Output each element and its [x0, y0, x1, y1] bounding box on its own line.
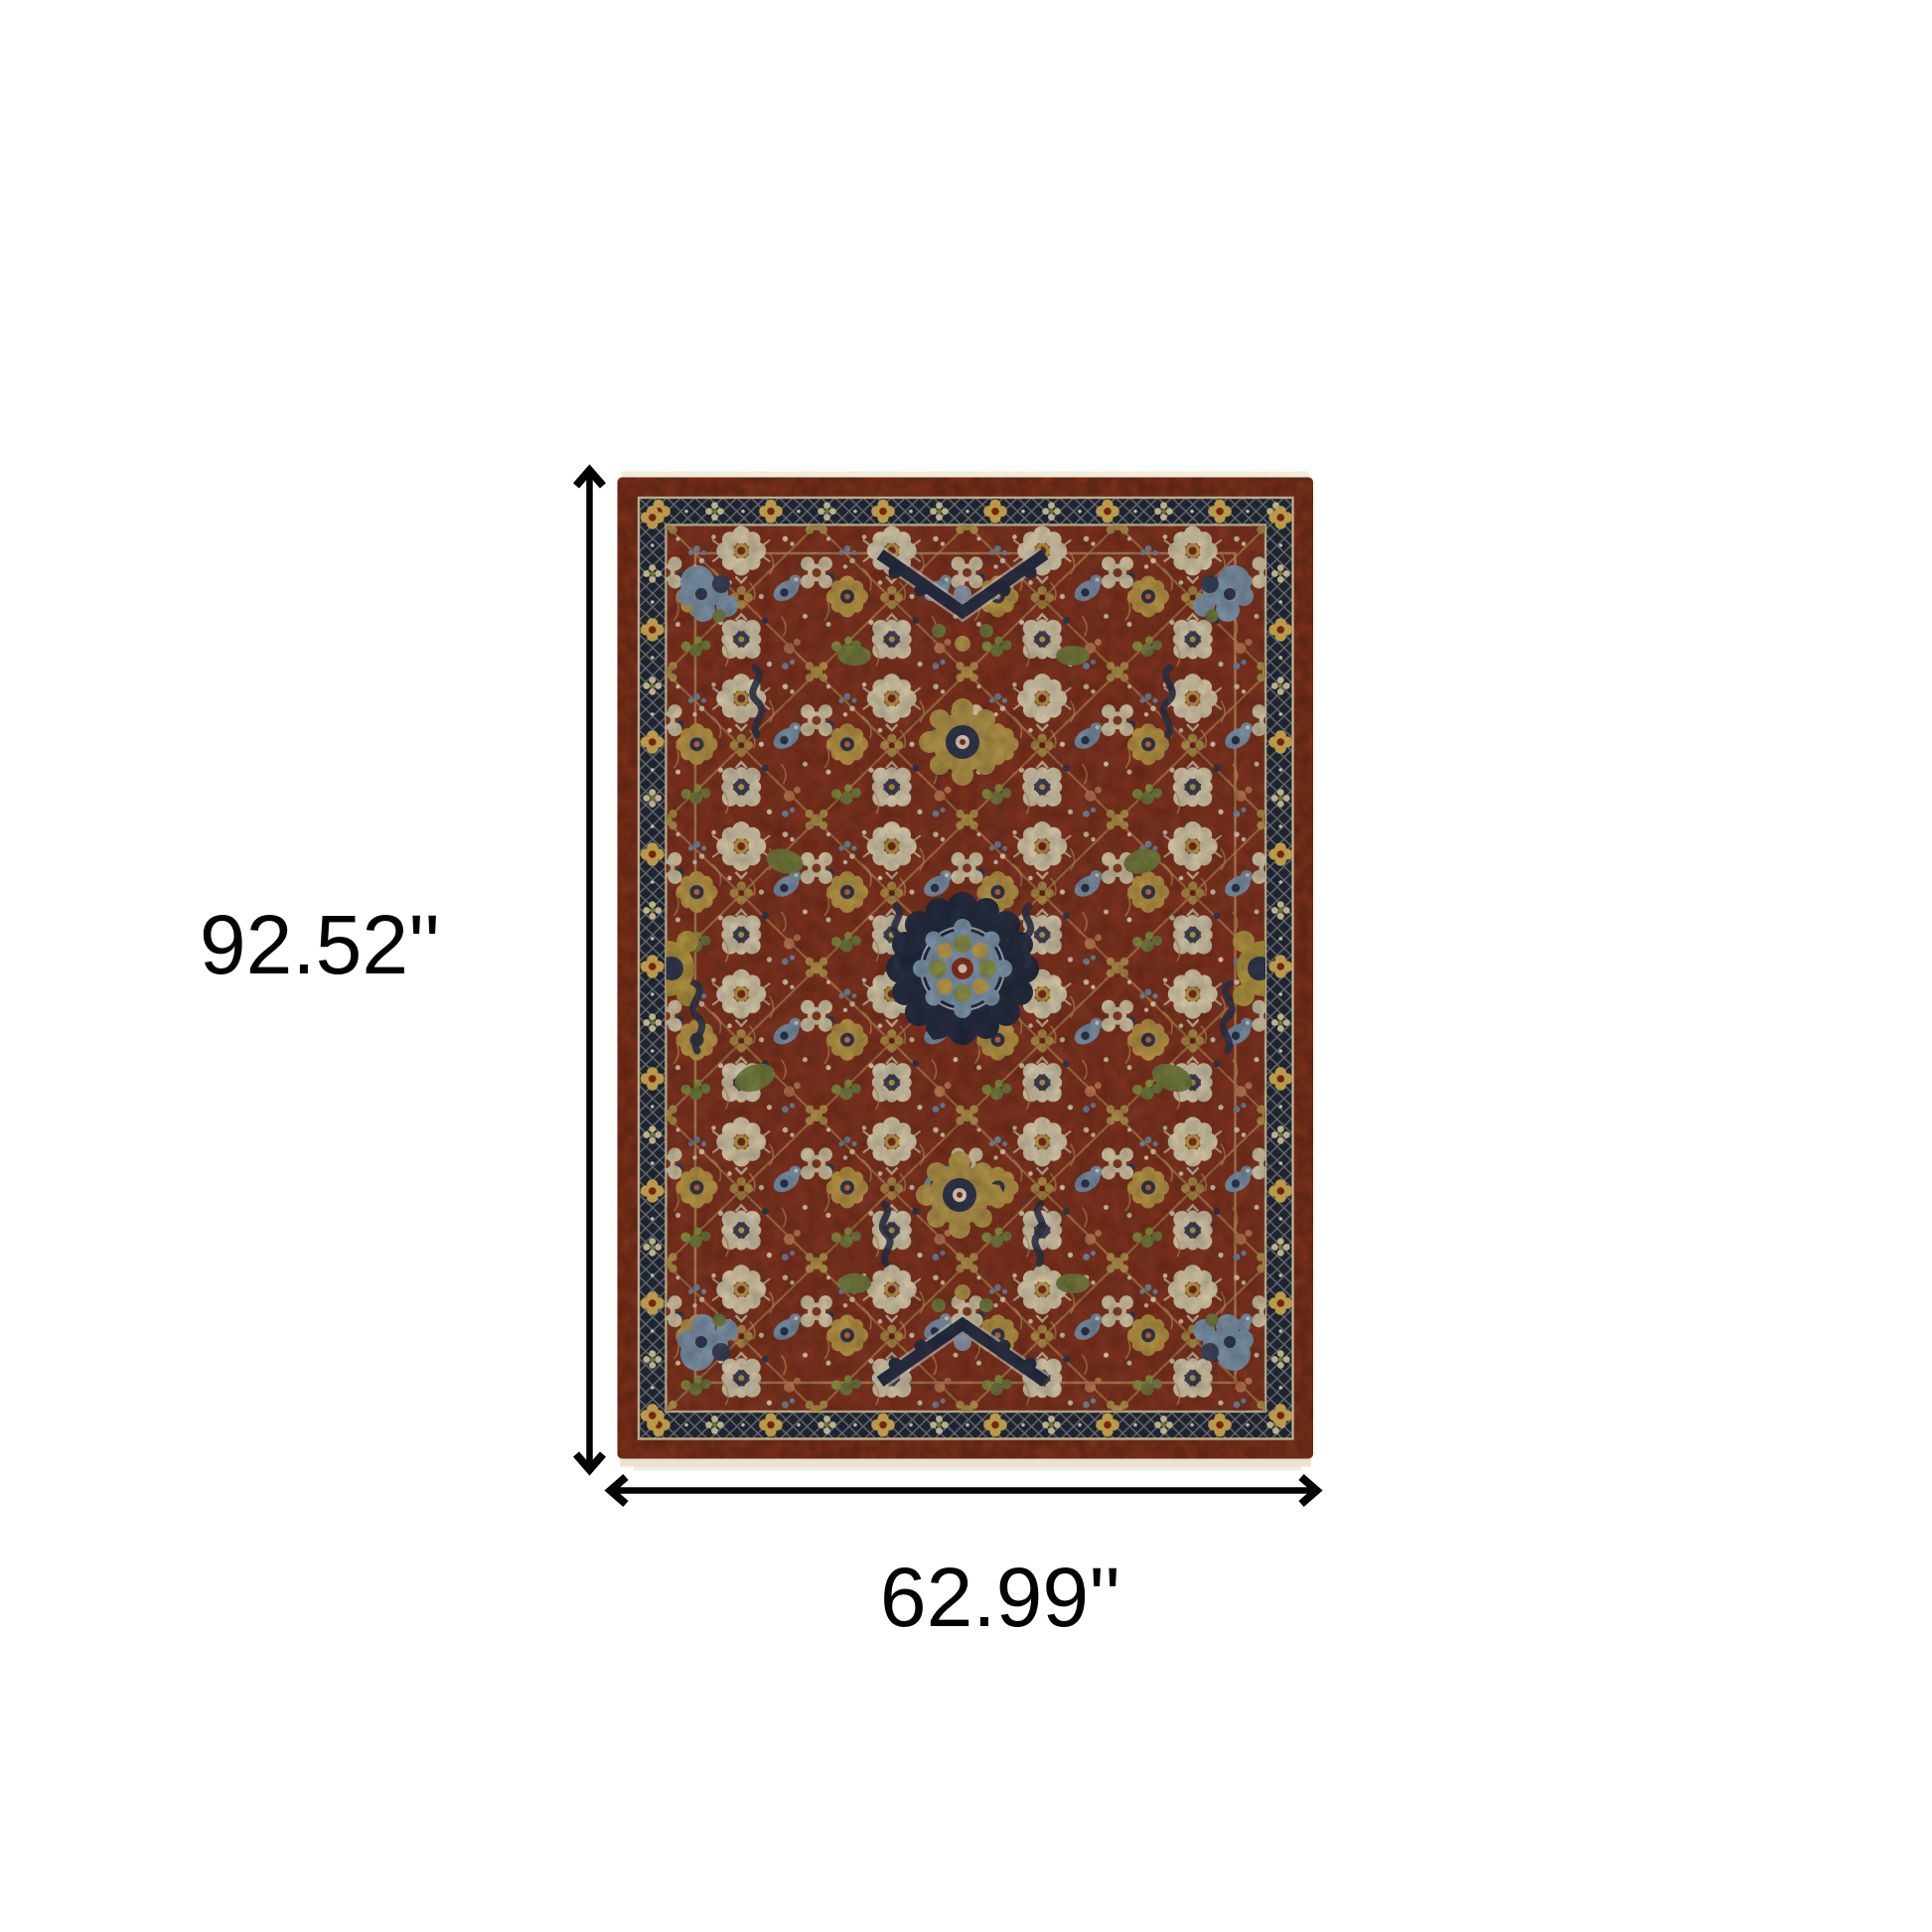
svg-text:92.52'': 92.52''	[200, 898, 440, 991]
svg-text:62.99'': 62.99''	[880, 1551, 1120, 1644]
